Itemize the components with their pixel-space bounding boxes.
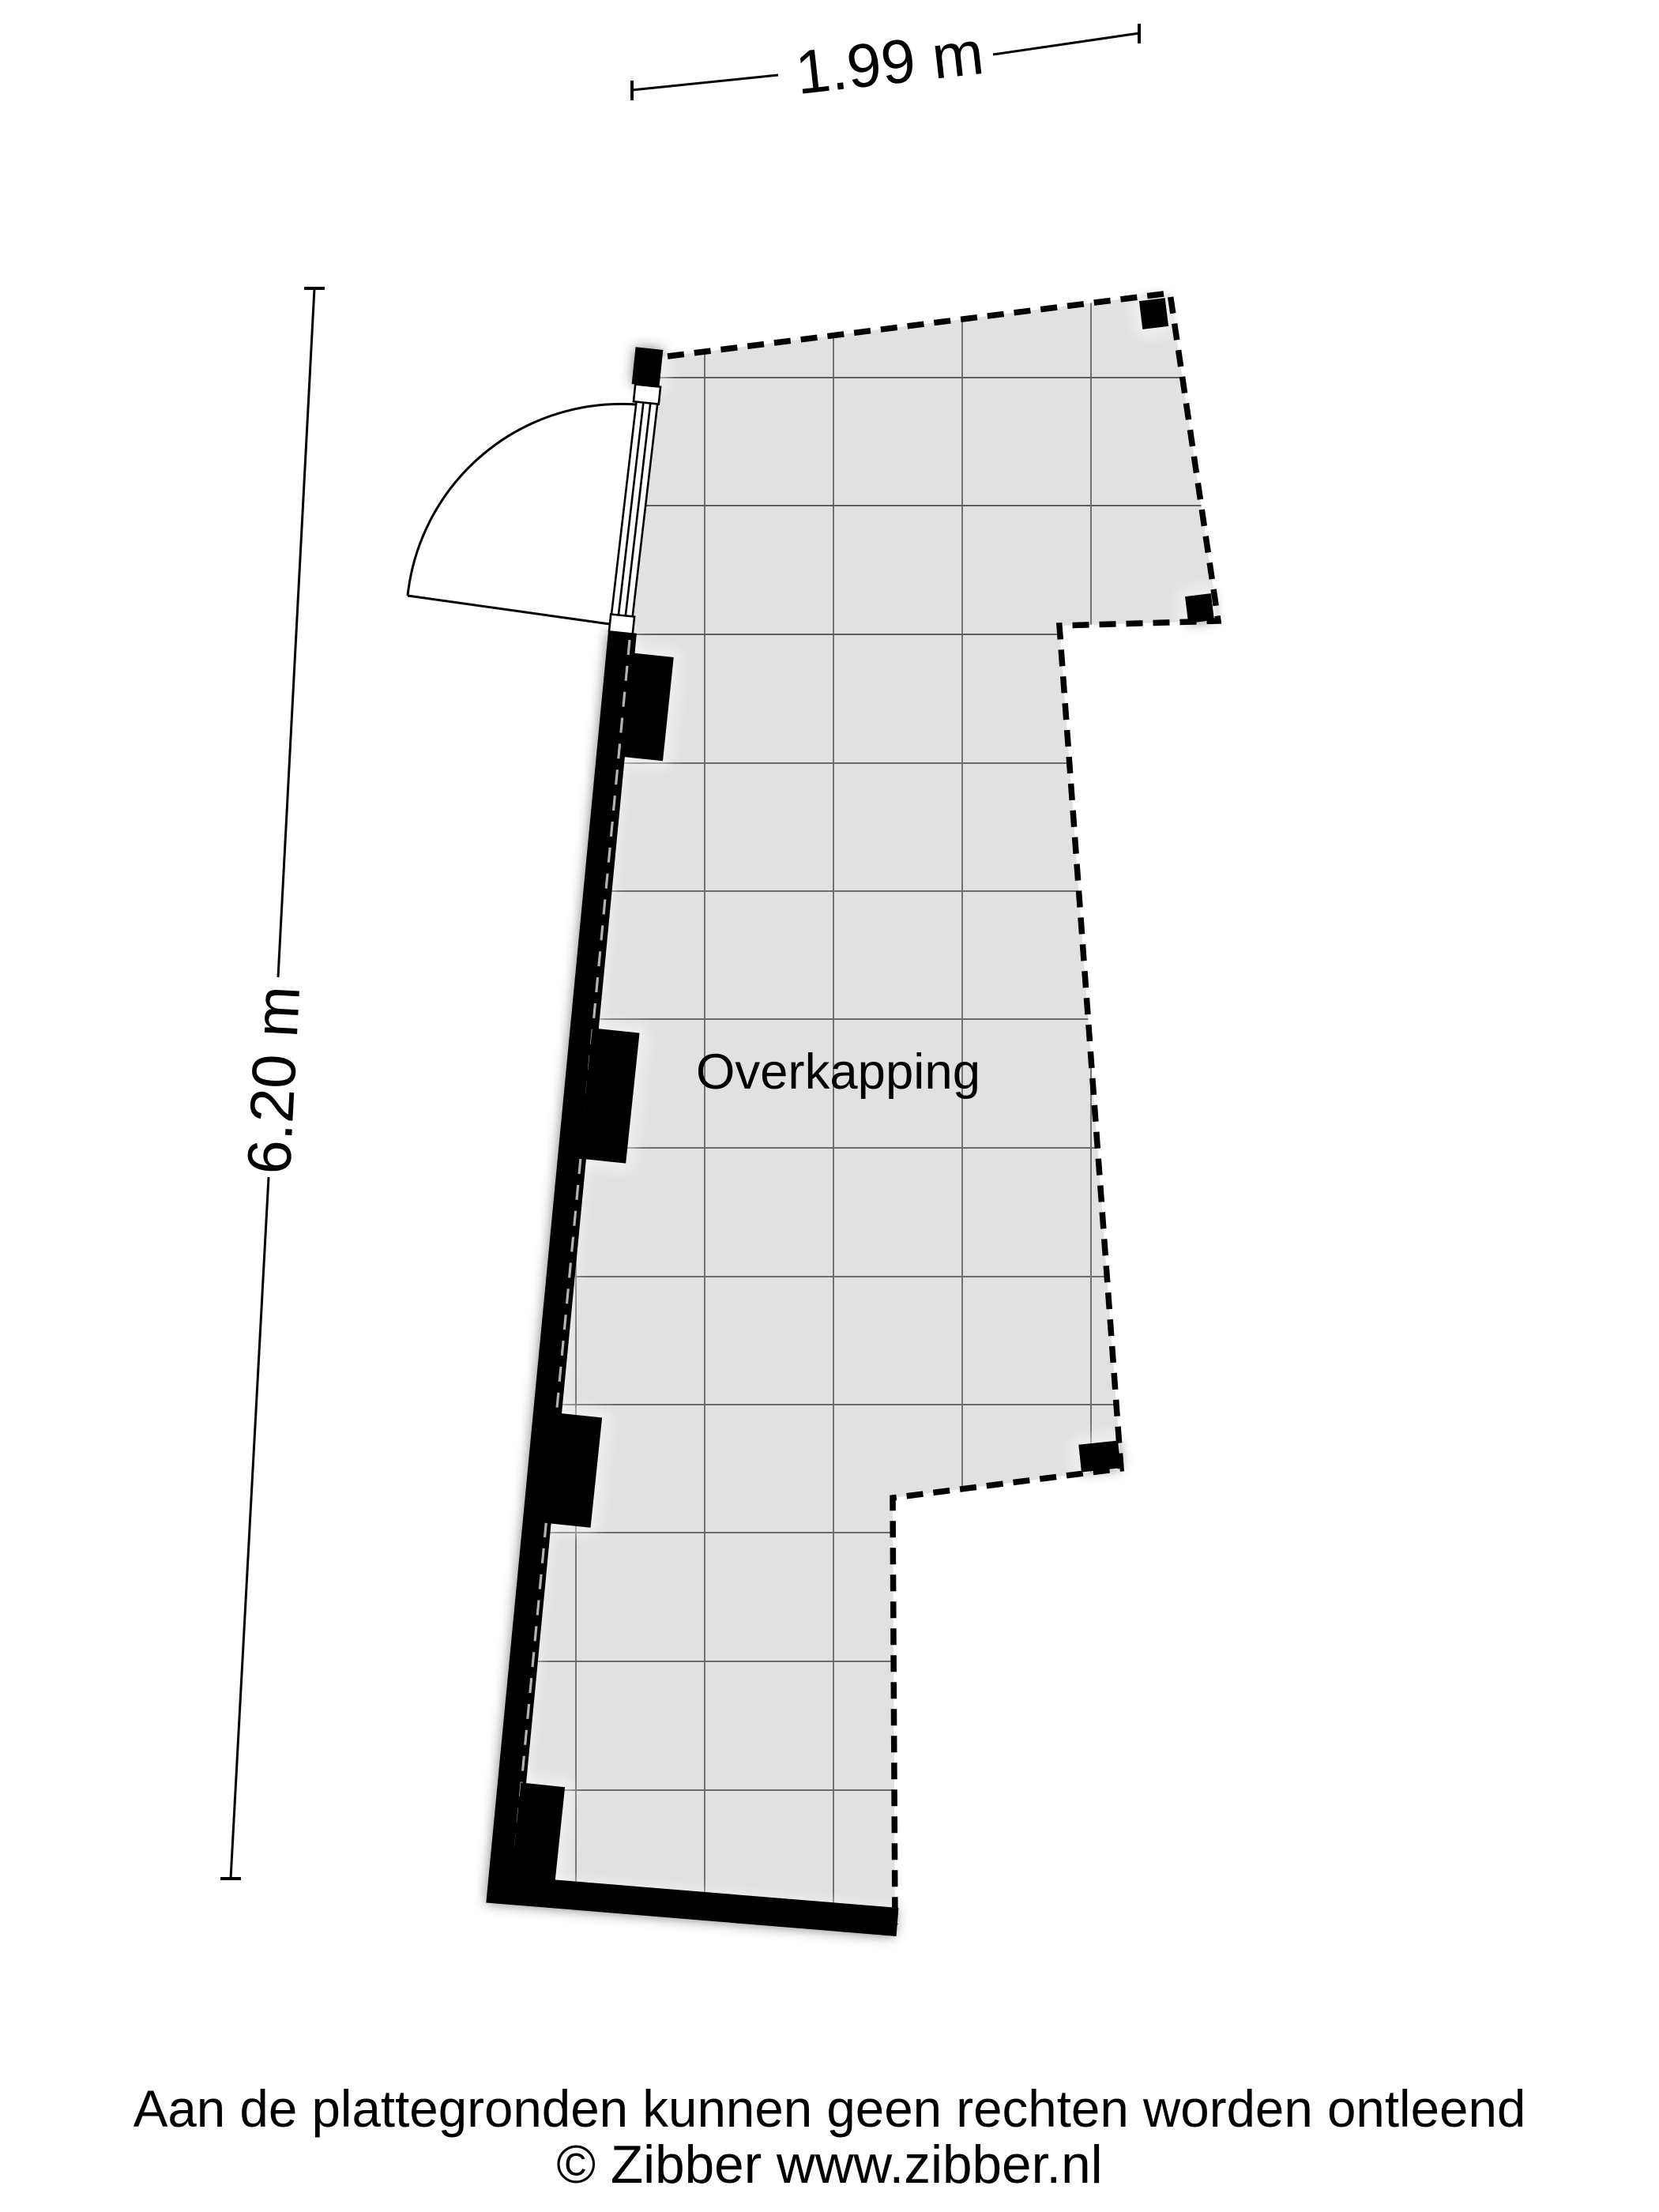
svg-text:© Zibber www.zibber.nl: © Zibber www.zibber.nl bbox=[556, 2135, 1102, 2195]
svg-text:Overkapping: Overkapping bbox=[696, 1044, 980, 1100]
svg-text:1.99 m: 1.99 m bbox=[792, 17, 987, 107]
svg-text:Aan de plattegronden kunnen ge: Aan de plattegronden kunnen geen rechten… bbox=[134, 2080, 1526, 2138]
svg-text:6.20 m: 6.20 m bbox=[234, 984, 313, 1176]
